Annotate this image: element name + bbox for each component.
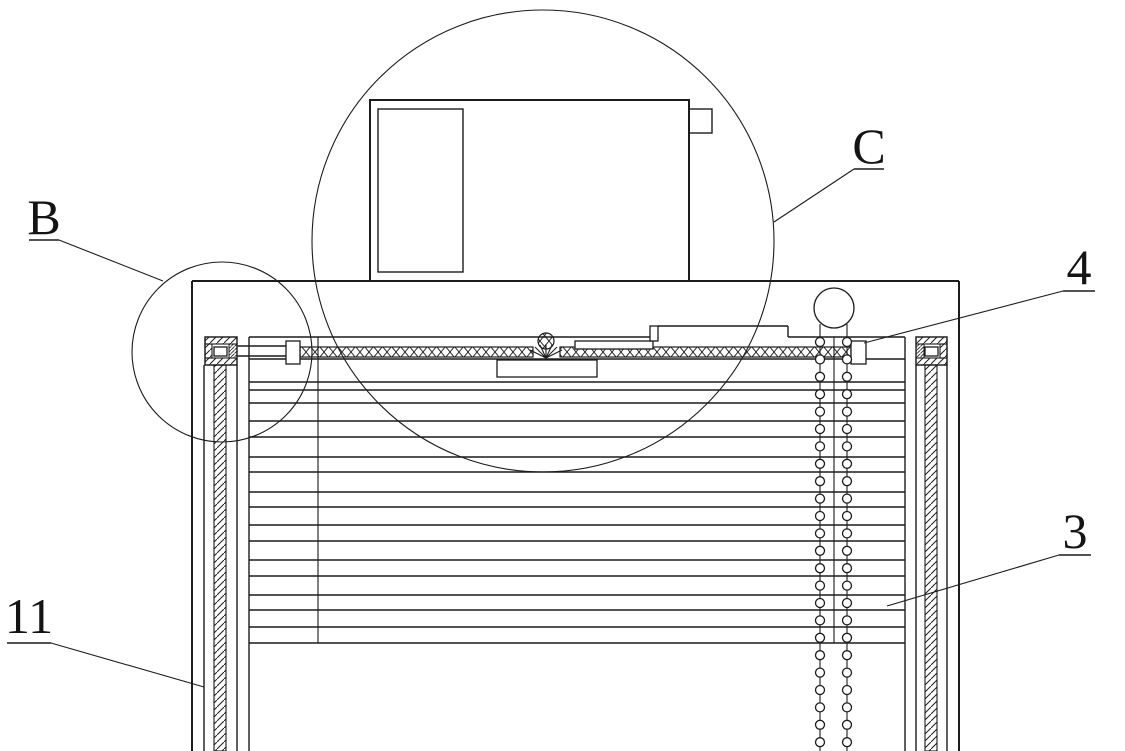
headrail: [237, 326, 905, 377]
label-11-leader: [51, 643, 204, 687]
left-rail-hatched-strip: [214, 365, 226, 751]
chain-bead: [816, 338, 825, 347]
chain-bead: [816, 668, 825, 677]
chain-bead: [816, 425, 825, 434]
label-3: 3: [1063, 503, 1088, 559]
chain-bead: [816, 459, 825, 468]
label-C: C: [852, 118, 885, 174]
chain-bead: [843, 720, 852, 729]
chain-bead: [843, 425, 852, 434]
right-bracket: [916, 337, 947, 365]
chain-bead: [843, 738, 852, 747]
label-B: B: [27, 189, 60, 245]
label-4: 4: [1067, 239, 1092, 295]
chain-bead: [816, 651, 825, 660]
chain-bead: [843, 546, 852, 555]
chain-bead: [816, 738, 825, 747]
step-joint: [650, 326, 658, 341]
chain-bead: [816, 477, 825, 486]
motor-unit: [370, 100, 712, 281]
chain-bead: [816, 355, 825, 364]
chain-bead: [843, 459, 852, 468]
motor-housing: [370, 100, 689, 281]
label-3-leader: [887, 555, 1059, 606]
chain-bead: [843, 564, 852, 573]
chain-bead: [843, 529, 852, 538]
chain-bead: [843, 703, 852, 712]
chain-bead: [843, 372, 852, 381]
chain-bead: [843, 512, 852, 521]
slider-channel: [575, 341, 653, 349]
lift-cords: [318, 337, 834, 643]
chain-bead: [843, 407, 852, 416]
chain-bead: [843, 599, 852, 608]
chain-bead: [843, 651, 852, 660]
chain-bead: [816, 407, 825, 416]
left-bracket-socket: [214, 347, 227, 356]
chain-bead: [816, 703, 825, 712]
chain-bead: [816, 616, 825, 625]
chain-bead: [816, 494, 825, 503]
chain-bead: [816, 599, 825, 608]
chain-bead: [843, 616, 852, 625]
chain-bead: [816, 442, 825, 451]
chain-bead: [843, 442, 852, 451]
chain-bead: [816, 512, 825, 521]
chain-bead: [816, 390, 825, 399]
label-11: 11: [5, 588, 53, 644]
left-rail: [204, 337, 249, 751]
chain-bead: [843, 355, 852, 364]
chain-bead: [816, 686, 825, 695]
patent-figure: B C 4 3 11: [0, 0, 1125, 751]
left-end-block: [286, 341, 300, 364]
motor-inner-panel: [378, 109, 463, 272]
right-rail: [905, 337, 947, 751]
chain-bead: [816, 720, 825, 729]
chain-bead: [816, 546, 825, 555]
label-4-leader: [864, 291, 1063, 343]
chain-bead: [816, 581, 825, 590]
chain-bead: [843, 581, 852, 590]
right-end-block: [851, 341, 866, 364]
motor-connector-tab: [689, 109, 712, 133]
chain-bead: [816, 564, 825, 573]
label-C-leader: [774, 169, 854, 222]
pulley-wheel: [814, 288, 854, 328]
chain-bead: [843, 686, 852, 695]
center-plate: [497, 360, 597, 377]
chain-bead: [843, 494, 852, 503]
left-bracket: [205, 337, 237, 365]
right-bracket-socket: [925, 347, 938, 356]
gear-knob: [538, 333, 554, 349]
chain-bead: [843, 390, 852, 399]
chain-bead: [843, 633, 852, 642]
drawing-canvas: B C 4 3 11: [0, 0, 1125, 751]
blind-slats: [249, 382, 905, 643]
crosshatched-bar-left: [300, 347, 533, 357]
chain-bead: [816, 529, 825, 538]
label-B-leader: [59, 240, 163, 281]
right-rail-hatched-strip: [925, 365, 937, 751]
chain-bead: [816, 372, 825, 381]
chain-bead: [816, 633, 825, 642]
chain-bead: [843, 668, 852, 677]
chain-bead: [843, 477, 852, 486]
chain-bead: [843, 338, 852, 347]
